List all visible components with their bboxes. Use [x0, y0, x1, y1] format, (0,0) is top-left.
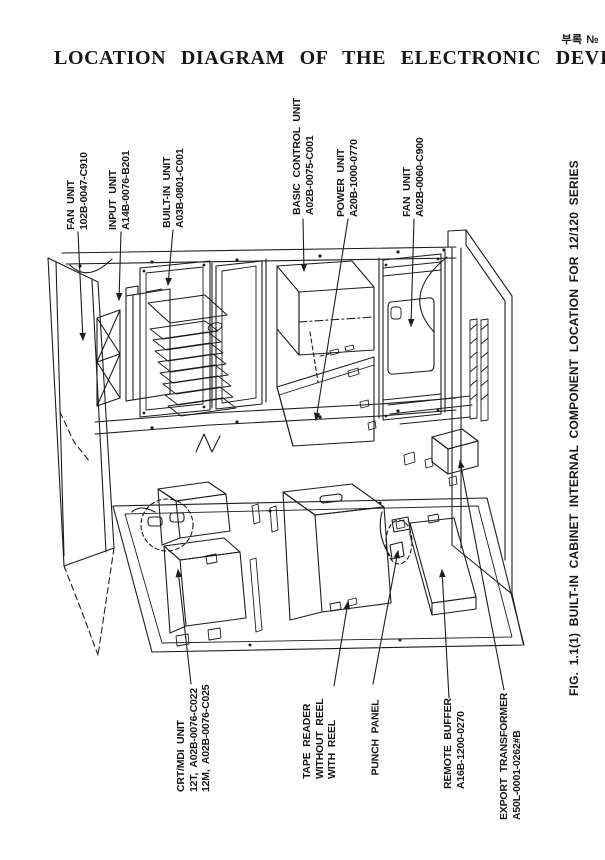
export-transformer-box: [388, 396, 478, 486]
label-export-transformer: EXPORT TRANSFORMER A50L-0001-0262#B: [498, 684, 524, 820]
label-fan-unit-top-name: FAN UNIT: [65, 130, 78, 230]
lower-panel: [113, 498, 524, 652]
leader-lines: [78, 219, 504, 698]
label-power-unit: POWER UNIT A20B-1000-0770: [335, 123, 361, 217]
figure-caption: FIG. 1.1(1) BUILT-IN CABINET INTERNAL CO…: [567, 156, 581, 696]
label-tape-reader-name: TAPE READER: [301, 687, 314, 779]
label-built-in-unit-name: BUILT-IN UNIT: [161, 110, 174, 228]
label-remote-buffer: REMOTE BUFFER A16B-1200-0270: [442, 685, 468, 789]
tape-reader-box: [270, 484, 391, 620]
fan-lattice: [97, 310, 120, 406]
label-fan-unit-right: FAN UNIT A02B-0060-C900: [401, 125, 427, 217]
label-export-transformer-name: EXPORT TRANSFORMER: [498, 684, 511, 820]
middle-bay: [212, 259, 266, 409]
label-built-in-unit-part: A03B-0801-C001: [174, 110, 187, 228]
upper-cabinet-shell: [62, 230, 523, 643]
label-crt-mdi-unit-part1: 12T, A02B-0076-C022: [188, 682, 201, 792]
label-basic-control-unit-name: BASIC CONTROL UNIT: [291, 85, 304, 215]
label-input-unit-part: A14B-0076-B201: [120, 124, 133, 230]
label-crt-mdi-unit: CRT/MDI UNIT 12T, A02B-0076-C022 12M, A0…: [175, 682, 213, 792]
remote-buffer-box: [410, 514, 476, 615]
label-punch-panel: PUNCH PANEL: [370, 686, 383, 776]
label-remote-buffer-part: A16B-1200-0270: [455, 685, 468, 789]
manual-page: LOCATION DIAGRAM OF THE ELECTRONIC DEVIC…: [0, 0, 605, 860]
label-fan-unit-top: FAN UNIT 102B-0047-C910: [65, 130, 91, 230]
crt-mdi-assembly: [132, 482, 262, 646]
label-tape-reader-variant1: WITHOUT REEL: [314, 687, 327, 779]
label-input-unit-name: INPUT UNIT: [107, 124, 120, 230]
label-crt-mdi-unit-name: CRT/MDI UNIT: [175, 682, 188, 792]
label-fan-unit-top-part: 102B-0047-C910: [78, 130, 91, 230]
label-tape-reader: TAPE READER WITHOUT REEL WITH REEL: [301, 687, 339, 779]
label-power-unit-part: A20B-1000-0770: [348, 123, 361, 217]
label-input-unit: INPUT UNIT A14B-0076-B201: [107, 124, 133, 230]
label-tape-reader-variant2: WITH REEL: [326, 687, 339, 779]
left-door-open: [48, 258, 220, 655]
label-remote-buffer-name: REMOTE BUFFER: [442, 685, 455, 789]
label-fan-unit-right-part: A02B-0060-C900: [414, 125, 427, 217]
label-power-unit-name: POWER UNIT: [335, 123, 348, 217]
label-built-in-unit: BUILT-IN UNIT A03B-0801-C001: [161, 110, 187, 228]
label-punch-panel-name: PUNCH PANEL: [370, 686, 383, 776]
label-export-transformer-part: A50L-0001-0262#B: [511, 684, 524, 820]
label-basic-control-unit-part: A02B-0075-C001: [304, 85, 317, 215]
label-fan-unit-right-name: FAN UNIT: [401, 125, 414, 217]
label-basic-control-unit: BASIC CONTROL UNIT A02B-0075-C001: [291, 85, 317, 215]
label-crt-mdi-unit-part2: 12M, A02B-0076-C025: [200, 682, 213, 792]
